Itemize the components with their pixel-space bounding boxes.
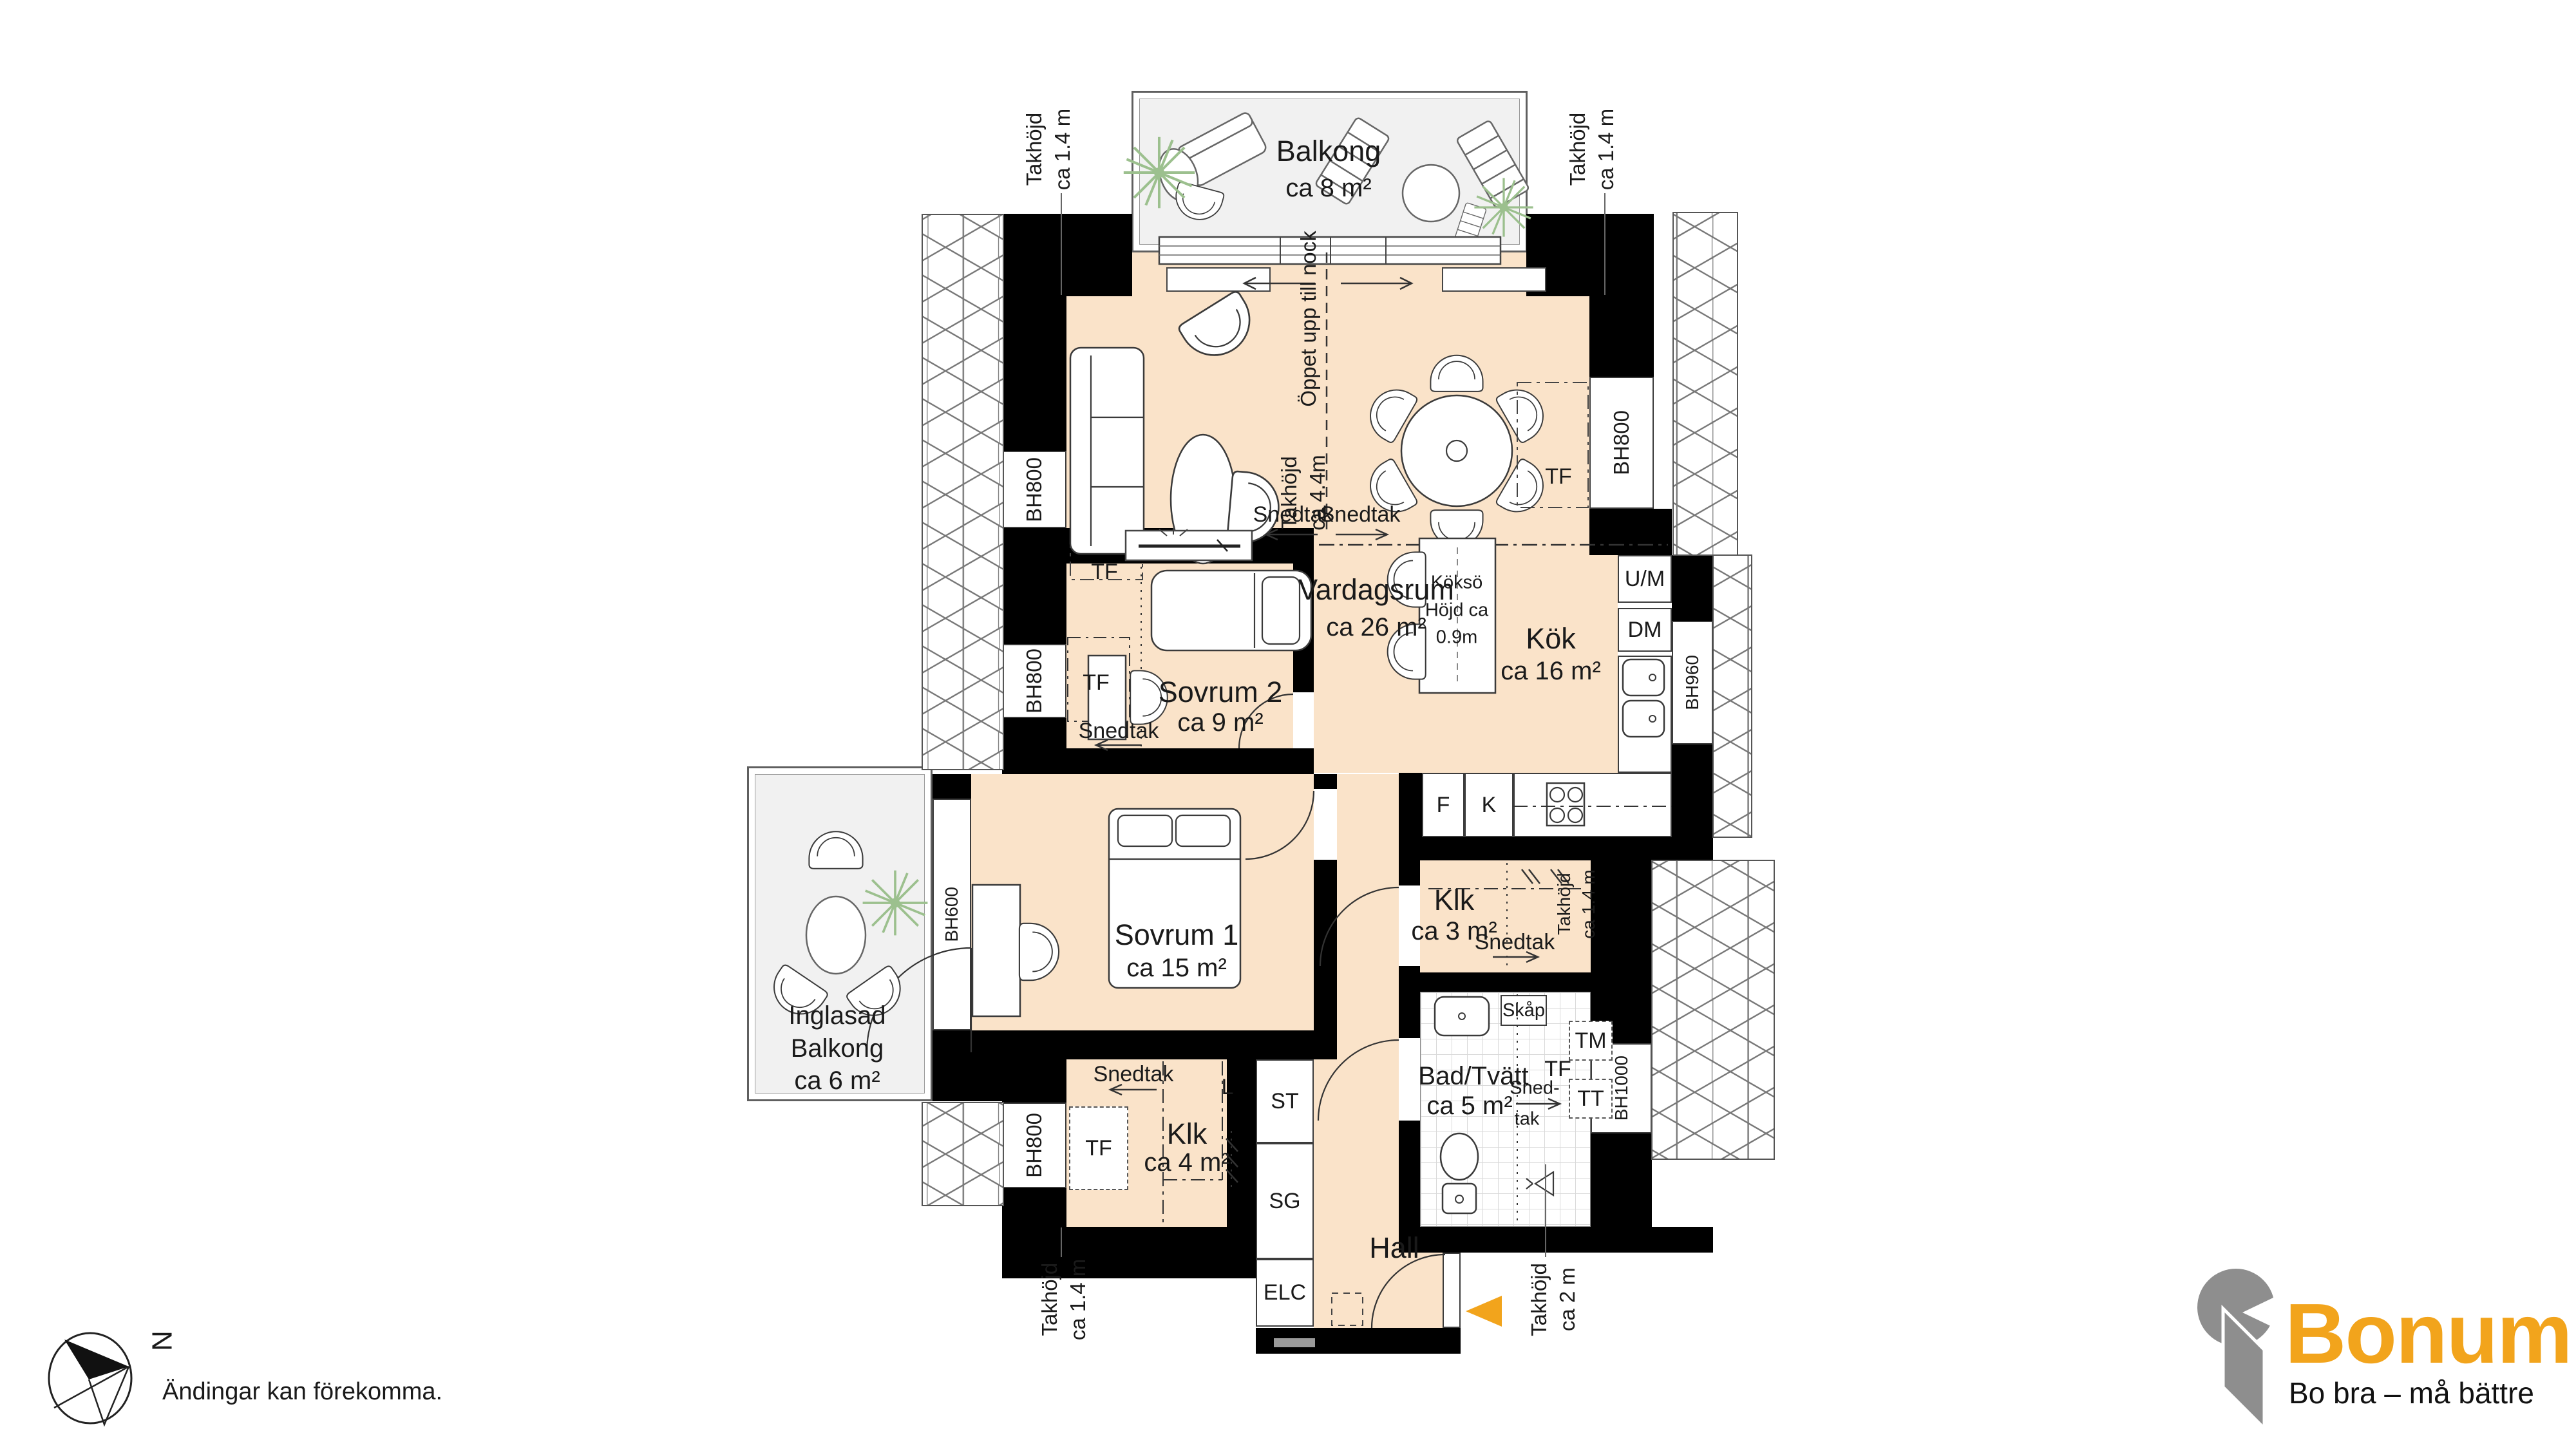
sovrum1-furniture [867, 791, 1314, 1052]
room-label-inglasad-2: Balkong [791, 1035, 884, 1062]
snedtak-label: Snedtak [1320, 503, 1401, 526]
tf-label: TF [1544, 1057, 1571, 1081]
room-area-balkong: ca 8 m² [1285, 175, 1371, 202]
disclaimer-text: Ändingar kan förekomma. [162, 1378, 442, 1406]
entrance-arrow [1466, 1296, 1502, 1327]
tf-label: TF [1091, 560, 1118, 583]
floorplan-canvas: BH800 BH800 BH800 BH960 BH800 BH1000 BH6… [0, 0, 2576, 1449]
balcony-door [1159, 237, 1546, 291]
room-label-sovrum2: Sovrum 2 [1159, 677, 1283, 708]
room-label-sovrum1: Sovrum 1 [1115, 920, 1239, 951]
room-area-kok: ca 16 m² [1501, 658, 1601, 685]
ceiling-height-text: ca 1.4 m [1066, 1259, 1090, 1341]
ceiling-height-top-left: Takhöjd ca 1.4 m [1022, 109, 1075, 191]
hall-details [1332, 1255, 1502, 1328]
island-label-3: 0.9m [1436, 628, 1477, 648]
snedtak-label: Snedtak [1079, 719, 1159, 743]
ceiling-height-text: Takhöjd [1037, 1263, 1062, 1336]
glazed-balcony-furniture [764, 831, 928, 1026]
tf-label: TF [1083, 671, 1110, 694]
ceiling-height-bottom-left: Takhöjd ca 1.4 m [1037, 1259, 1090, 1341]
furniture-overlay [0, 0, 2576, 1449]
room-label-inglasad-1: Inglasad [788, 1002, 885, 1029]
vardagsrum-furniture [1070, 290, 1588, 580]
brand-tagline: Bo bra – må bättre [2289, 1376, 2534, 1410]
compass-north-label: N [146, 1331, 176, 1351]
ceiling-height-text: Takhöjd [1554, 873, 1575, 936]
room-area-sovrum1: ca 15 m² [1126, 954, 1227, 981]
room-area-inglasad: ca 6 m² [794, 1067, 880, 1094]
snedtak-hyphen-2: tak [1515, 1110, 1540, 1130]
ceiling-height-top-right: Takhöjd ca 1.4 m [1566, 109, 1618, 191]
ceiling-height-text: Takhöjd [1527, 1263, 1551, 1336]
room-area-bad: ca 5 m² [1426, 1092, 1512, 1119]
snedtak-label: Snedtak [1475, 931, 1555, 954]
room-label-klk3: Klk [1434, 885, 1475, 916]
bonum-logo-symbol [2197, 1269, 2275, 1428]
compass [49, 1333, 131, 1425]
snedtak-label: Snedtak [1094, 1063, 1174, 1086]
room-area-klk4: ca 4 m² [1144, 1149, 1229, 1176]
ceiling-height-text: Takhöjd [1022, 113, 1046, 186]
island-label-2: Höjd ca [1425, 601, 1488, 621]
ceiling-height-klk3: Takhöjd ca 1.4 m [1554, 869, 1599, 938]
snedtak-hyphen-1: Sned- [1510, 1079, 1559, 1099]
room-label-kok: Kök [1526, 623, 1576, 654]
ceiling-height-2m: Takhöjd ca 2 m [1527, 1263, 1580, 1336]
ceiling-height-text: ca 1.4 m [1594, 109, 1618, 191]
ceiling-height-text: Takhöjd [1566, 113, 1590, 186]
room-label-klk4: Klk [1167, 1119, 1207, 1150]
open-to-ridge-label: Öppet upp till nock [1296, 231, 1321, 406]
room-label-balkong: Balkong [1276, 136, 1381, 167]
brand-wordmark: Bonum [2285, 1285, 2571, 1382]
ceiling-height-text: ca 1.4 m [1578, 869, 1599, 938]
ceiling-height-text: ca 2 m [1555, 1267, 1580, 1331]
ceiling-height-text: ca 1.4 m [1050, 109, 1075, 191]
island-label-1: Köksö [1431, 573, 1483, 593]
l-closet-label: L [1222, 1075, 1234, 1099]
open-to-ridge-text: Öppet upp till nock [1296, 231, 1321, 406]
room-label-hall: Hall [1369, 1233, 1419, 1264]
room-area-sovrum2: ca 9 m² [1177, 709, 1263, 736]
tf-label: TF [1545, 465, 1572, 488]
room-area-vardagsrum: ca 26 m² [1326, 614, 1426, 641]
